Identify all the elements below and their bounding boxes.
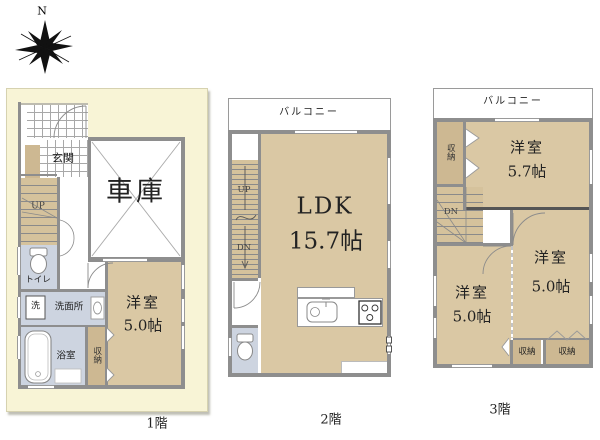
f3-room1-name: 洋室 <box>510 141 544 156</box>
f1-wall-bath-closet <box>85 327 88 385</box>
f3-wall-closet-bottom <box>437 184 463 187</box>
f3-closet-top-label: 収納 <box>446 144 455 161</box>
f3-room1-size: 5.7帖 <box>508 165 547 180</box>
f1-garage-label: 車庫 <box>106 179 166 206</box>
f1-washer-label: 洗 <box>31 303 40 312</box>
f2-wall-toilet-top <box>232 325 258 328</box>
f3-window-left-1 <box>433 276 437 306</box>
f2-wall-stairs-bottom <box>232 278 258 281</box>
f3-wall-room3-left <box>510 210 513 246</box>
f3-wall-room1-left <box>463 122 466 210</box>
f3-bedroom2 <box>437 246 511 364</box>
f3-closet-b1-label: 収納 <box>518 348 535 357</box>
f3-wall-room1-bottom <box>466 207 589 210</box>
f1-entrance-label: 玄関 <box>52 153 74 164</box>
f1-wall-bath-top <box>21 325 105 327</box>
f2-toilet-room <box>232 328 258 373</box>
f2-ldk-name: LDK <box>297 196 354 219</box>
compass-north-label: N <box>37 6 47 17</box>
f3-wall-closet-left <box>510 340 513 364</box>
f2-stairs-up-label: UP <box>238 186 251 195</box>
f1-wall-right <box>181 137 185 389</box>
f1-wall-bedroom-left <box>105 262 108 385</box>
f3-floor-label: 3階 <box>489 404 510 417</box>
f2-wall-bottom <box>228 373 391 377</box>
f3-wall-closet-top <box>513 338 589 340</box>
f2-kitchen-counter <box>297 298 383 327</box>
f3-room3-name: 洋室 <box>534 251 568 266</box>
f1-window-toilet <box>17 247 21 275</box>
f3-balcony-sliding-door <box>495 118 539 122</box>
f3-wall-stairs-bottom <box>437 243 511 246</box>
f2-window-right-3 <box>387 336 391 354</box>
f1-stairs <box>21 178 57 245</box>
f3-bedroom3 <box>513 210 589 340</box>
f3-balcony-label: バルコニー <box>483 97 543 107</box>
f1-window-bath-bottom <box>28 385 54 389</box>
f1-window-bedroom-3 <box>181 326 185 349</box>
f1-bath-label: 浴室 <box>56 351 75 361</box>
f1-stairs-up-label: UP <box>31 203 45 212</box>
f3-room3-size: 5.0帖 <box>532 280 571 295</box>
f1-washroom-label: 洗面所 <box>55 302 84 312</box>
f3-window-right-1 <box>589 150 593 184</box>
f1-wall-garage-top <box>88 137 185 141</box>
f2-balcony-sliding-door <box>295 130 357 134</box>
f1-porch-tiles <box>27 105 88 138</box>
f1-bedroom-name: 洋室 <box>126 296 160 311</box>
f1-wall-washroom-top <box>21 289 105 292</box>
f2-window-toilet <box>228 338 232 356</box>
f2-stairs <box>232 160 258 278</box>
f1-bedroom-size: 5.0帖 <box>124 319 163 334</box>
f3-closet-b2-label: 収納 <box>558 348 575 357</box>
f1-toilet-label: トイレ <box>25 276 51 285</box>
f1-wall-under-entrance <box>21 174 57 176</box>
f1-wall-garage-left <box>88 141 91 257</box>
f3-stairs-down-label: DN <box>444 208 458 217</box>
f2-ldk-size: 15.7帖 <box>289 231 363 254</box>
f2-wall-stairs-right <box>258 134 261 278</box>
f1-window-bedroom-1 <box>181 265 185 289</box>
f3-window-bottom <box>452 364 492 368</box>
f1-window-bath <box>17 336 21 359</box>
f2-stairs-down-label: DN <box>237 244 251 253</box>
f3-wall-closet-divider <box>543 340 546 364</box>
f1-floor-label: 1階 <box>146 418 167 431</box>
f1-garage-front-opening <box>103 258 147 262</box>
f3-window-right-2 <box>589 254 593 282</box>
f1-window-bedroom-2 <box>181 299 185 322</box>
f3-room2-size: 5.0帖 <box>453 310 492 325</box>
f1-wall-stair-hall <box>57 177 60 292</box>
f2-balcony-label: バルコニー <box>279 108 339 118</box>
f1-window-washroom <box>17 297 21 318</box>
f2-window-right-1 <box>387 158 391 204</box>
f2-window-right-2 <box>387 241 391 268</box>
compass-rose-icon <box>6 8 96 88</box>
f2-kitchen-island <box>297 287 355 298</box>
f2-floor-label: 2階 <box>320 414 341 427</box>
floor-plan-image: N <box>0 0 600 440</box>
f3-window-left-2 <box>433 318 437 338</box>
f3-window-right-3 <box>589 296 593 324</box>
f3-room2-name: 洋室 <box>455 286 489 301</box>
f1-closet-label: 収納 <box>92 347 101 364</box>
